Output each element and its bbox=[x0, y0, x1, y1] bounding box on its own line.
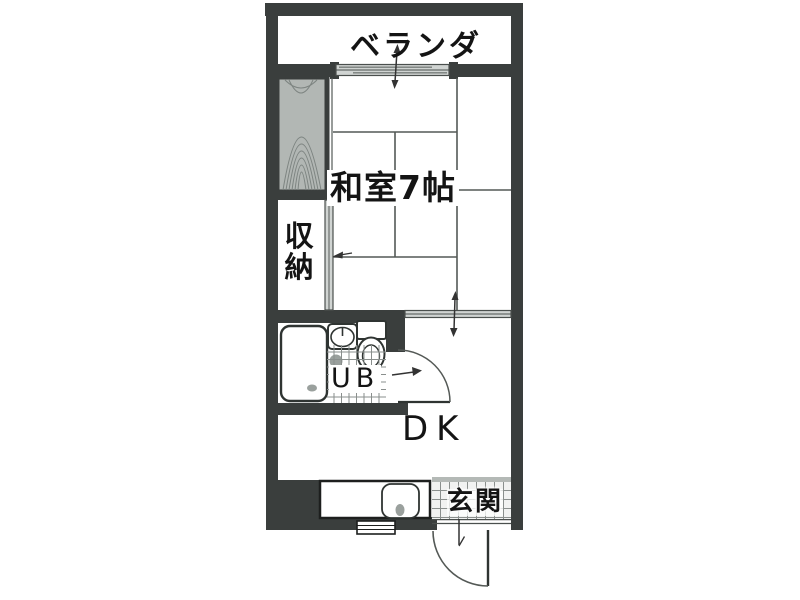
label-veranda: ベランダ bbox=[350, 21, 482, 65]
ub-swing-door bbox=[386, 350, 450, 402]
label-storage: 収納 bbox=[282, 221, 316, 283]
sink-drain bbox=[396, 504, 405, 516]
counter-ledge bbox=[357, 521, 395, 534]
washitsu-dk-sliding-door bbox=[405, 311, 511, 318]
wall-top bbox=[265, 3, 523, 16]
label-japanese-room: 和室7帖 bbox=[327, 170, 459, 206]
bathtub-drain bbox=[307, 385, 317, 392]
kitchen-counter bbox=[320, 481, 430, 518]
wood-floor-panel bbox=[277, 77, 327, 192]
label-entrance: 玄関 bbox=[447, 489, 503, 516]
entrance-swing-door bbox=[433, 530, 488, 586]
kitchen-sink bbox=[382, 484, 419, 518]
wall-ub-bottom bbox=[278, 403, 408, 415]
wall-veranda-sill-right bbox=[452, 64, 523, 77]
floor-plan: ベランダ 和室7帖 収納 UB DK 玄関 bbox=[0, 0, 800, 600]
veranda-sliding-window bbox=[336, 65, 449, 76]
storage-sliding-door bbox=[325, 200, 333, 310]
label-dining-kitchen: DK bbox=[402, 409, 466, 449]
floor-plan-drawing bbox=[0, 0, 800, 600]
bathtub bbox=[281, 326, 327, 401]
wall-ub-right bbox=[386, 310, 405, 352]
wall-right bbox=[511, 3, 523, 530]
wall-corner-mass bbox=[278, 480, 324, 522]
label-unit-bath: UB bbox=[329, 365, 381, 393]
